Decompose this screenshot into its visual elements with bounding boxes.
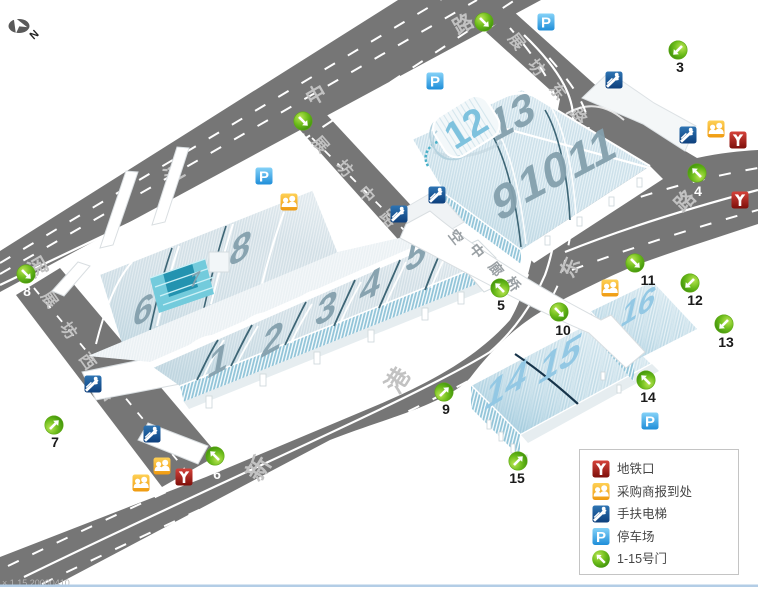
- svg-text:6: 6: [213, 466, 221, 482]
- svg-text:9: 9: [442, 401, 450, 417]
- svg-text:2: 2: [482, 30, 490, 46]
- svg-text:8: 8: [23, 283, 31, 299]
- svg-text:11: 11: [641, 272, 656, 288]
- svg-text:5: 5: [497, 297, 505, 313]
- svg-text:1-15号门: 1-15号门: [617, 551, 667, 566]
- svg-text:1: 1: [299, 130, 307, 146]
- svg-text:地铁口: 地铁口: [617, 462, 655, 476]
- svg-text:7: 7: [51, 434, 59, 450]
- svg-text:10: 10: [555, 322, 571, 338]
- svg-text:采购商报到处: 采购商报到处: [617, 484, 693, 499]
- svg-text:4: 4: [694, 183, 702, 199]
- svg-text:停车场: 停车场: [617, 529, 655, 544]
- svg-text:14: 14: [640, 389, 656, 405]
- svg-text:12: 12: [687, 292, 703, 308]
- svg-text:手扶电梯: 手扶电梯: [617, 506, 667, 521]
- svg-text:13: 13: [718, 334, 734, 350]
- svg-text:15: 15: [509, 470, 525, 486]
- svg-text:3: 3: [676, 59, 684, 75]
